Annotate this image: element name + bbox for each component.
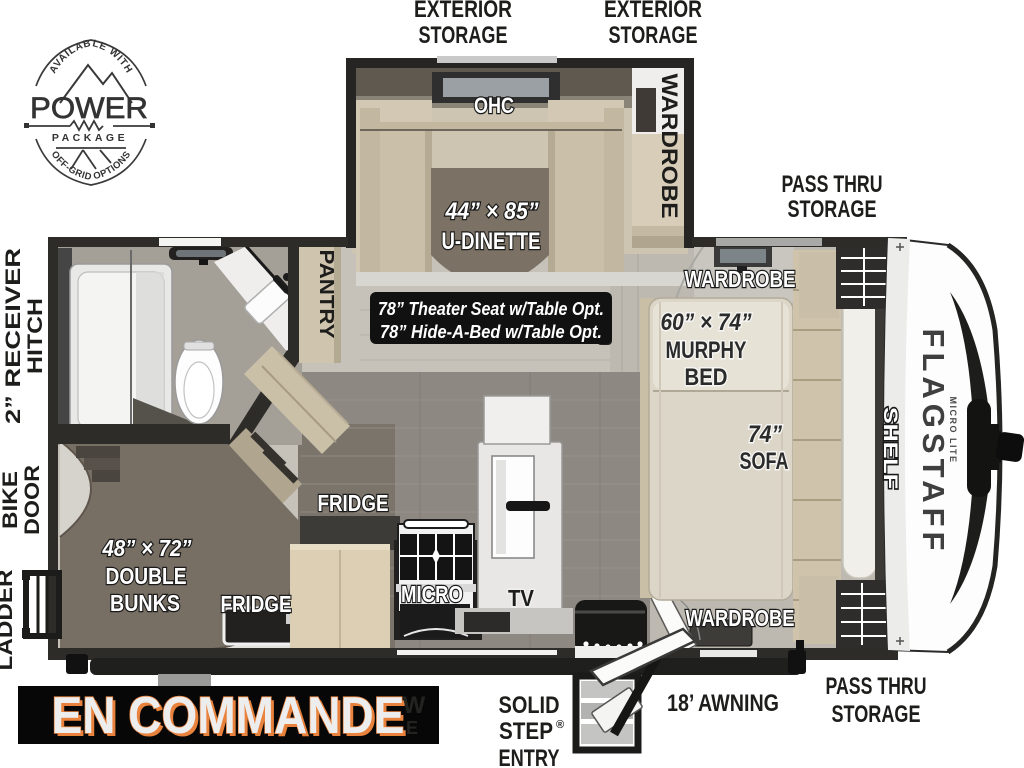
svg-text:FLAGSTAFF: FLAGSTAFF (916, 329, 951, 556)
svg-text:WARDROBE: WARDROBE (657, 74, 682, 219)
svg-text:44” × 85”: 44” × 85” (445, 198, 539, 225)
svg-text:60” × 74”: 60” × 74” (661, 309, 752, 336)
svg-text:STORAGE: STORAGE (788, 196, 877, 223)
svg-text:WARDROBE: WARDROBE (686, 605, 795, 631)
svg-text:TV: TV (508, 585, 535, 611)
svg-text:FRIDGE: FRIDGE (221, 591, 292, 617)
svg-text:W: W (403, 692, 426, 719)
svg-text:DOUBLE: DOUBLE (106, 563, 187, 589)
svg-text:2” RECEIVER: 2” RECEIVER (2, 248, 25, 424)
svg-text:STEP: STEP (499, 718, 553, 745)
svg-text:78” Theater Seat w/Table Opt.: 78” Theater Seat w/Table Opt. (378, 299, 604, 319)
svg-text:ENTRY: ENTRY (499, 745, 560, 768)
svg-text:SOLID: SOLID (499, 692, 560, 719)
svg-text:STORAGE: STORAGE (419, 22, 508, 49)
svg-text:MURPHY: MURPHY (666, 337, 747, 364)
svg-text:MICRO LITE: MICRO LITE (948, 397, 958, 464)
svg-text:HITCH: HITCH (24, 298, 47, 374)
svg-text:POWER: POWER (30, 92, 148, 125)
svg-text:OHC: OHC (474, 93, 514, 118)
svg-text:DOOR: DOOR (21, 465, 44, 535)
svg-text:MICRO: MICRO (401, 581, 463, 607)
svg-text:LADDER: LADDER (0, 570, 17, 671)
svg-text:18’ AWNING: 18’ AWNING (667, 690, 779, 717)
svg-text:PANTRY: PANTRY (315, 250, 337, 340)
svg-text:E: E (406, 718, 418, 738)
svg-text:78” Hide-A-Bed w/Table Opt.: 78” Hide-A-Bed w/Table Opt. (380, 322, 602, 342)
svg-text:STORAGE: STORAGE (609, 22, 698, 49)
svg-text:FRIDGE: FRIDGE (318, 490, 389, 516)
svg-text:®: ® (556, 719, 564, 731)
svg-text:BUNKS: BUNKS (110, 590, 180, 616)
svg-text:PASS THRU: PASS THRU (826, 673, 927, 700)
svg-text:SHELF: SHELF (879, 407, 900, 489)
svg-text:SOFA: SOFA (740, 448, 789, 475)
svg-text:BED: BED (685, 364, 728, 391)
svg-text:PACKAGE: PACKAGE (52, 132, 128, 144)
svg-text:EXTERIOR: EXTERIOR (604, 0, 702, 23)
svg-text:48” × 72”: 48” × 72” (102, 535, 192, 561)
svg-text:74”: 74” (748, 421, 782, 448)
svg-text:WARDROBE: WARDROBE (685, 266, 796, 292)
svg-text:EN COMMANDE: EN COMMANDE (52, 687, 405, 745)
svg-text:EXTERIOR: EXTERIOR (414, 0, 512, 23)
svg-text:BIKE: BIKE (0, 471, 22, 529)
svg-text:PASS THRU: PASS THRU (782, 171, 883, 198)
svg-text:U-DINETTE: U-DINETTE (442, 228, 541, 255)
svg-text:STORAGE: STORAGE (832, 701, 921, 728)
